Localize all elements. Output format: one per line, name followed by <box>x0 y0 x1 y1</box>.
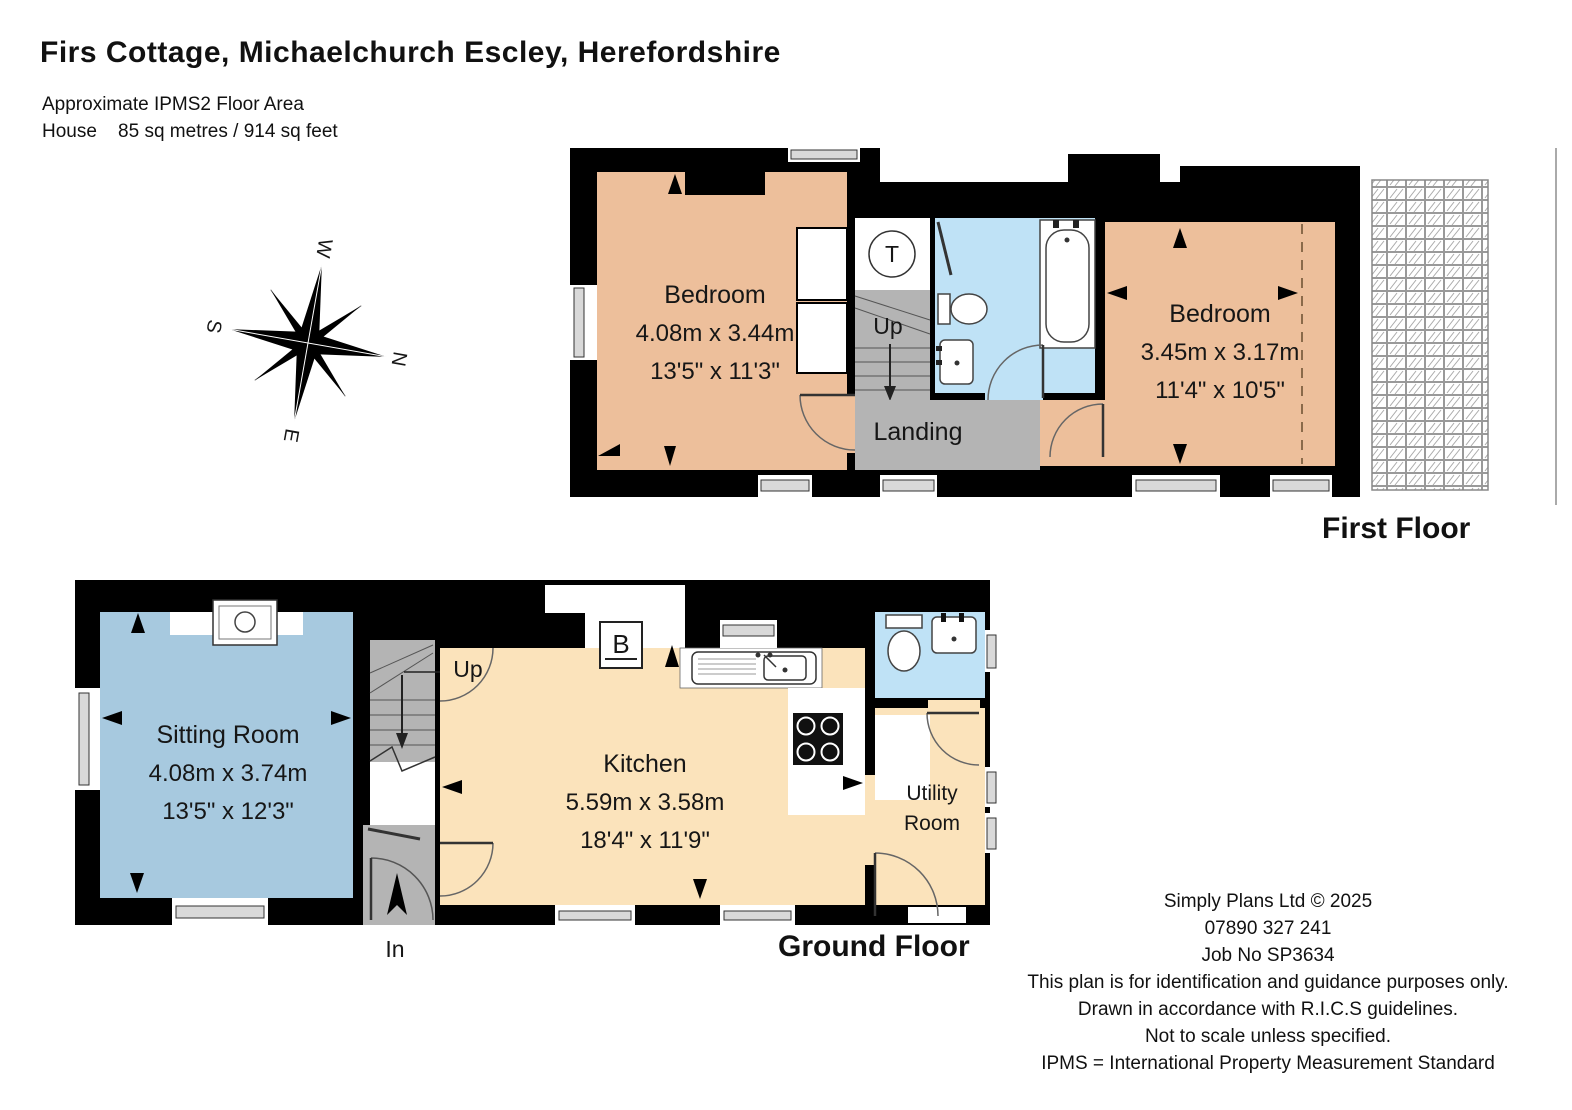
kitchen-name: Kitchen <box>603 750 686 778</box>
stairs-up-label: Up <box>873 313 902 339</box>
footer-phone: 07890 327 241 <box>958 915 1572 942</box>
fireplace-icon <box>213 600 277 645</box>
bedroom2-name: Bedroom <box>1169 300 1270 328</box>
sitting-name: Sitting Room <box>156 721 299 749</box>
utility-name-line2: Room <box>904 812 960 835</box>
basin-icon <box>936 340 973 384</box>
area-note-line2: House 85 sq metres / 914 sq feet <box>42 121 338 143</box>
compass-e-label: E <box>279 427 303 444</box>
sitting-metric: 4.08m x 3.74m <box>149 760 308 787</box>
tank-label: T <box>885 241 899 267</box>
room-wc <box>875 612 985 698</box>
area-note-line1: Approximate IPMS2 Floor Area <box>42 94 304 116</box>
first-floor-stairs: Up <box>855 290 930 401</box>
compass-n-label: N <box>387 350 411 368</box>
wardrobe <box>797 228 847 300</box>
boiler-label: B <box>612 629 629 659</box>
toilet-icon <box>886 615 922 671</box>
toilet-icon <box>938 294 987 324</box>
first-floor-label: First Floor <box>1322 512 1470 546</box>
kitchen-metric: 5.59m x 3.58m <box>566 789 725 816</box>
footer-disclaimer-2: Drawn in accordance with R.I.C.S guideli… <box>958 996 1572 1023</box>
kitchen-imperial: 18'4" x 11'9" <box>580 827 710 854</box>
room-landing: Landing <box>855 400 1040 470</box>
compass-w-label: W <box>311 237 336 260</box>
tank-cupboard: T <box>855 218 930 290</box>
wardrobe <box>797 303 847 373</box>
bedroom2-metric: 3.45m x 3.17m <box>1141 339 1300 366</box>
bedroom2-imperial: 11'4" x 10'5" <box>1155 377 1285 404</box>
room-sitting: Sitting Room 4.08m x 3.74m 13'5" x 12'3" <box>100 600 353 898</box>
footer-block: Simply Plans Ltd © 2025 07890 327 241 Jo… <box>958 888 1572 1077</box>
compass-rose-icon: N E S W <box>198 233 418 453</box>
entrance-in-label: In <box>385 936 404 962</box>
room-kitchen: Up B <box>440 613 865 905</box>
ground-floor-label: Ground Floor <box>778 930 970 964</box>
landing-label: Landing <box>874 418 963 446</box>
room-bathroom <box>935 218 1095 400</box>
footer-company: Simply Plans Ltd © 2025 <box>958 888 1572 915</box>
footer-disclaimer-1: This plan is for identification and guid… <box>958 969 1572 996</box>
bathtub-icon <box>1040 220 1095 348</box>
footer-disclaimer-3: Not to scale unless specified. <box>958 1023 1572 1050</box>
bedroom1-name: Bedroom <box>664 281 765 309</box>
hob-icon <box>788 688 865 815</box>
roof-hatch-area <box>1372 180 1488 490</box>
utility-name-line1: Utility <box>906 782 958 805</box>
kitchen-sink-icon <box>680 648 822 688</box>
footer-job-no: Job No SP3634 <box>958 942 1572 969</box>
basin-icon <box>932 613 976 653</box>
page-title: Firs Cottage, Michaelchurch Escley, Here… <box>40 36 781 70</box>
first-floor-plan: Bedroom 4.08m x 3.44m 13'5" x 11'3" T Up <box>570 148 1572 518</box>
footer-disclaimer-4: IPMS = International Property Measuremen… <box>958 1050 1572 1077</box>
bedroom1-imperial: 13'5" x 11'3" <box>650 358 780 385</box>
floorplan-page: Firs Cottage, Michaelchurch Escley, Here… <box>0 0 1572 1110</box>
bedroom1-metric: 4.08m x 3.44m <box>636 320 795 347</box>
compass-s-label: S <box>201 318 225 335</box>
ground-floor-plan: Sitting Room 4.08m x 3.74m 13'5" x 12'3" <box>60 575 1000 965</box>
kitchen-up-label: Up <box>453 656 482 682</box>
sitting-imperial: 13'5" x 12'3" <box>162 798 294 825</box>
